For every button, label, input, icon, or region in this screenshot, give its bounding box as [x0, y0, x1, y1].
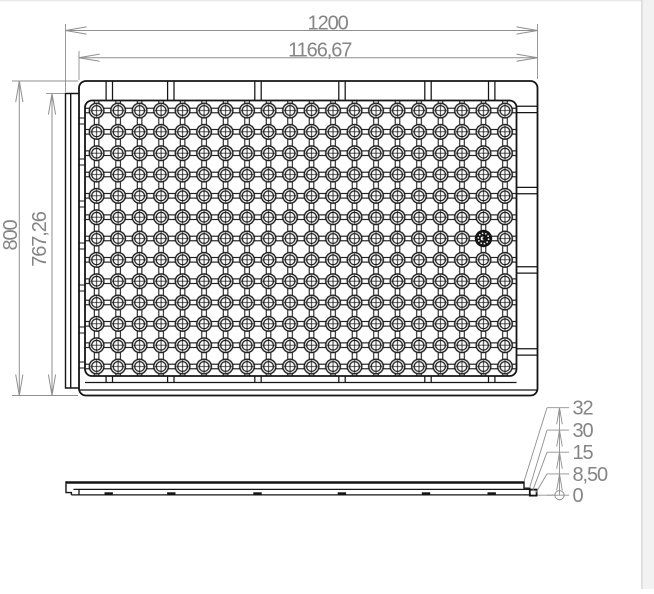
svg-text:0: 0 — [573, 485, 584, 507]
svg-text:30: 30 — [573, 420, 594, 442]
svg-text:15: 15 — [573, 442, 594, 464]
svg-text:800: 800 — [0, 219, 22, 250]
svg-text:767,26: 767,26 — [29, 211, 51, 267]
svg-text:8,50: 8,50 — [573, 464, 609, 486]
svg-text:1166,67: 1166,67 — [288, 39, 352, 61]
svg-text:1200: 1200 — [308, 13, 349, 35]
svg-text:32: 32 — [573, 398, 594, 420]
